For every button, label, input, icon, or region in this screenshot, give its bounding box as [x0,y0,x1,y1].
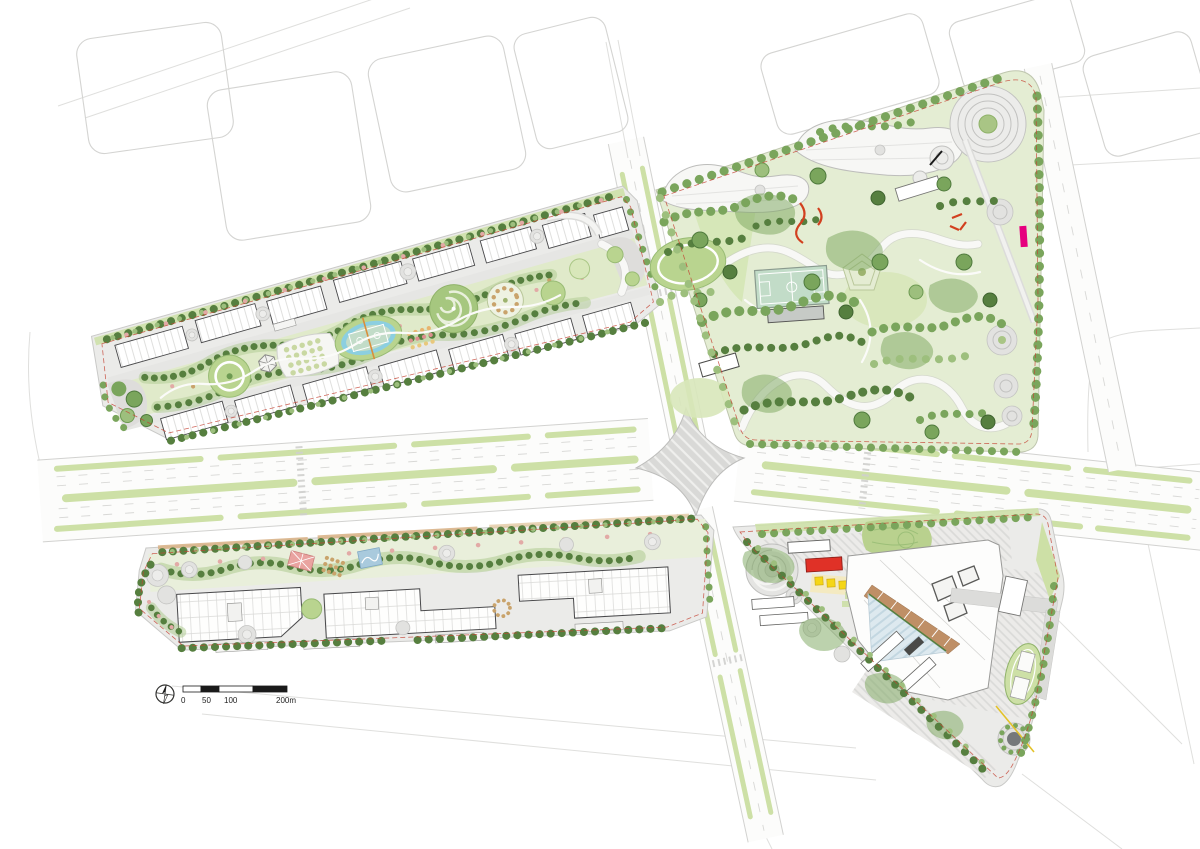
red-pavilion-building [806,557,843,572]
magenta-section-marker [1019,226,1027,247]
pavilion-building [788,540,831,554]
site-plan-svg: 0 50 100 200m [0,0,1200,849]
scale-label-0: 0 [181,696,186,705]
scale-label-200m: 200m [276,696,296,705]
masterplan-canvas: 0 50 100 200m [0,0,1200,849]
central-park [646,71,1044,452]
blue-playground [358,548,383,569]
scale-label-50: 50 [202,696,211,705]
commercial-mixed-use-block [733,508,1064,787]
scale-label-100: 100 [224,696,238,705]
scale-bar-segments [183,686,287,692]
south-residential-block [132,512,720,660]
